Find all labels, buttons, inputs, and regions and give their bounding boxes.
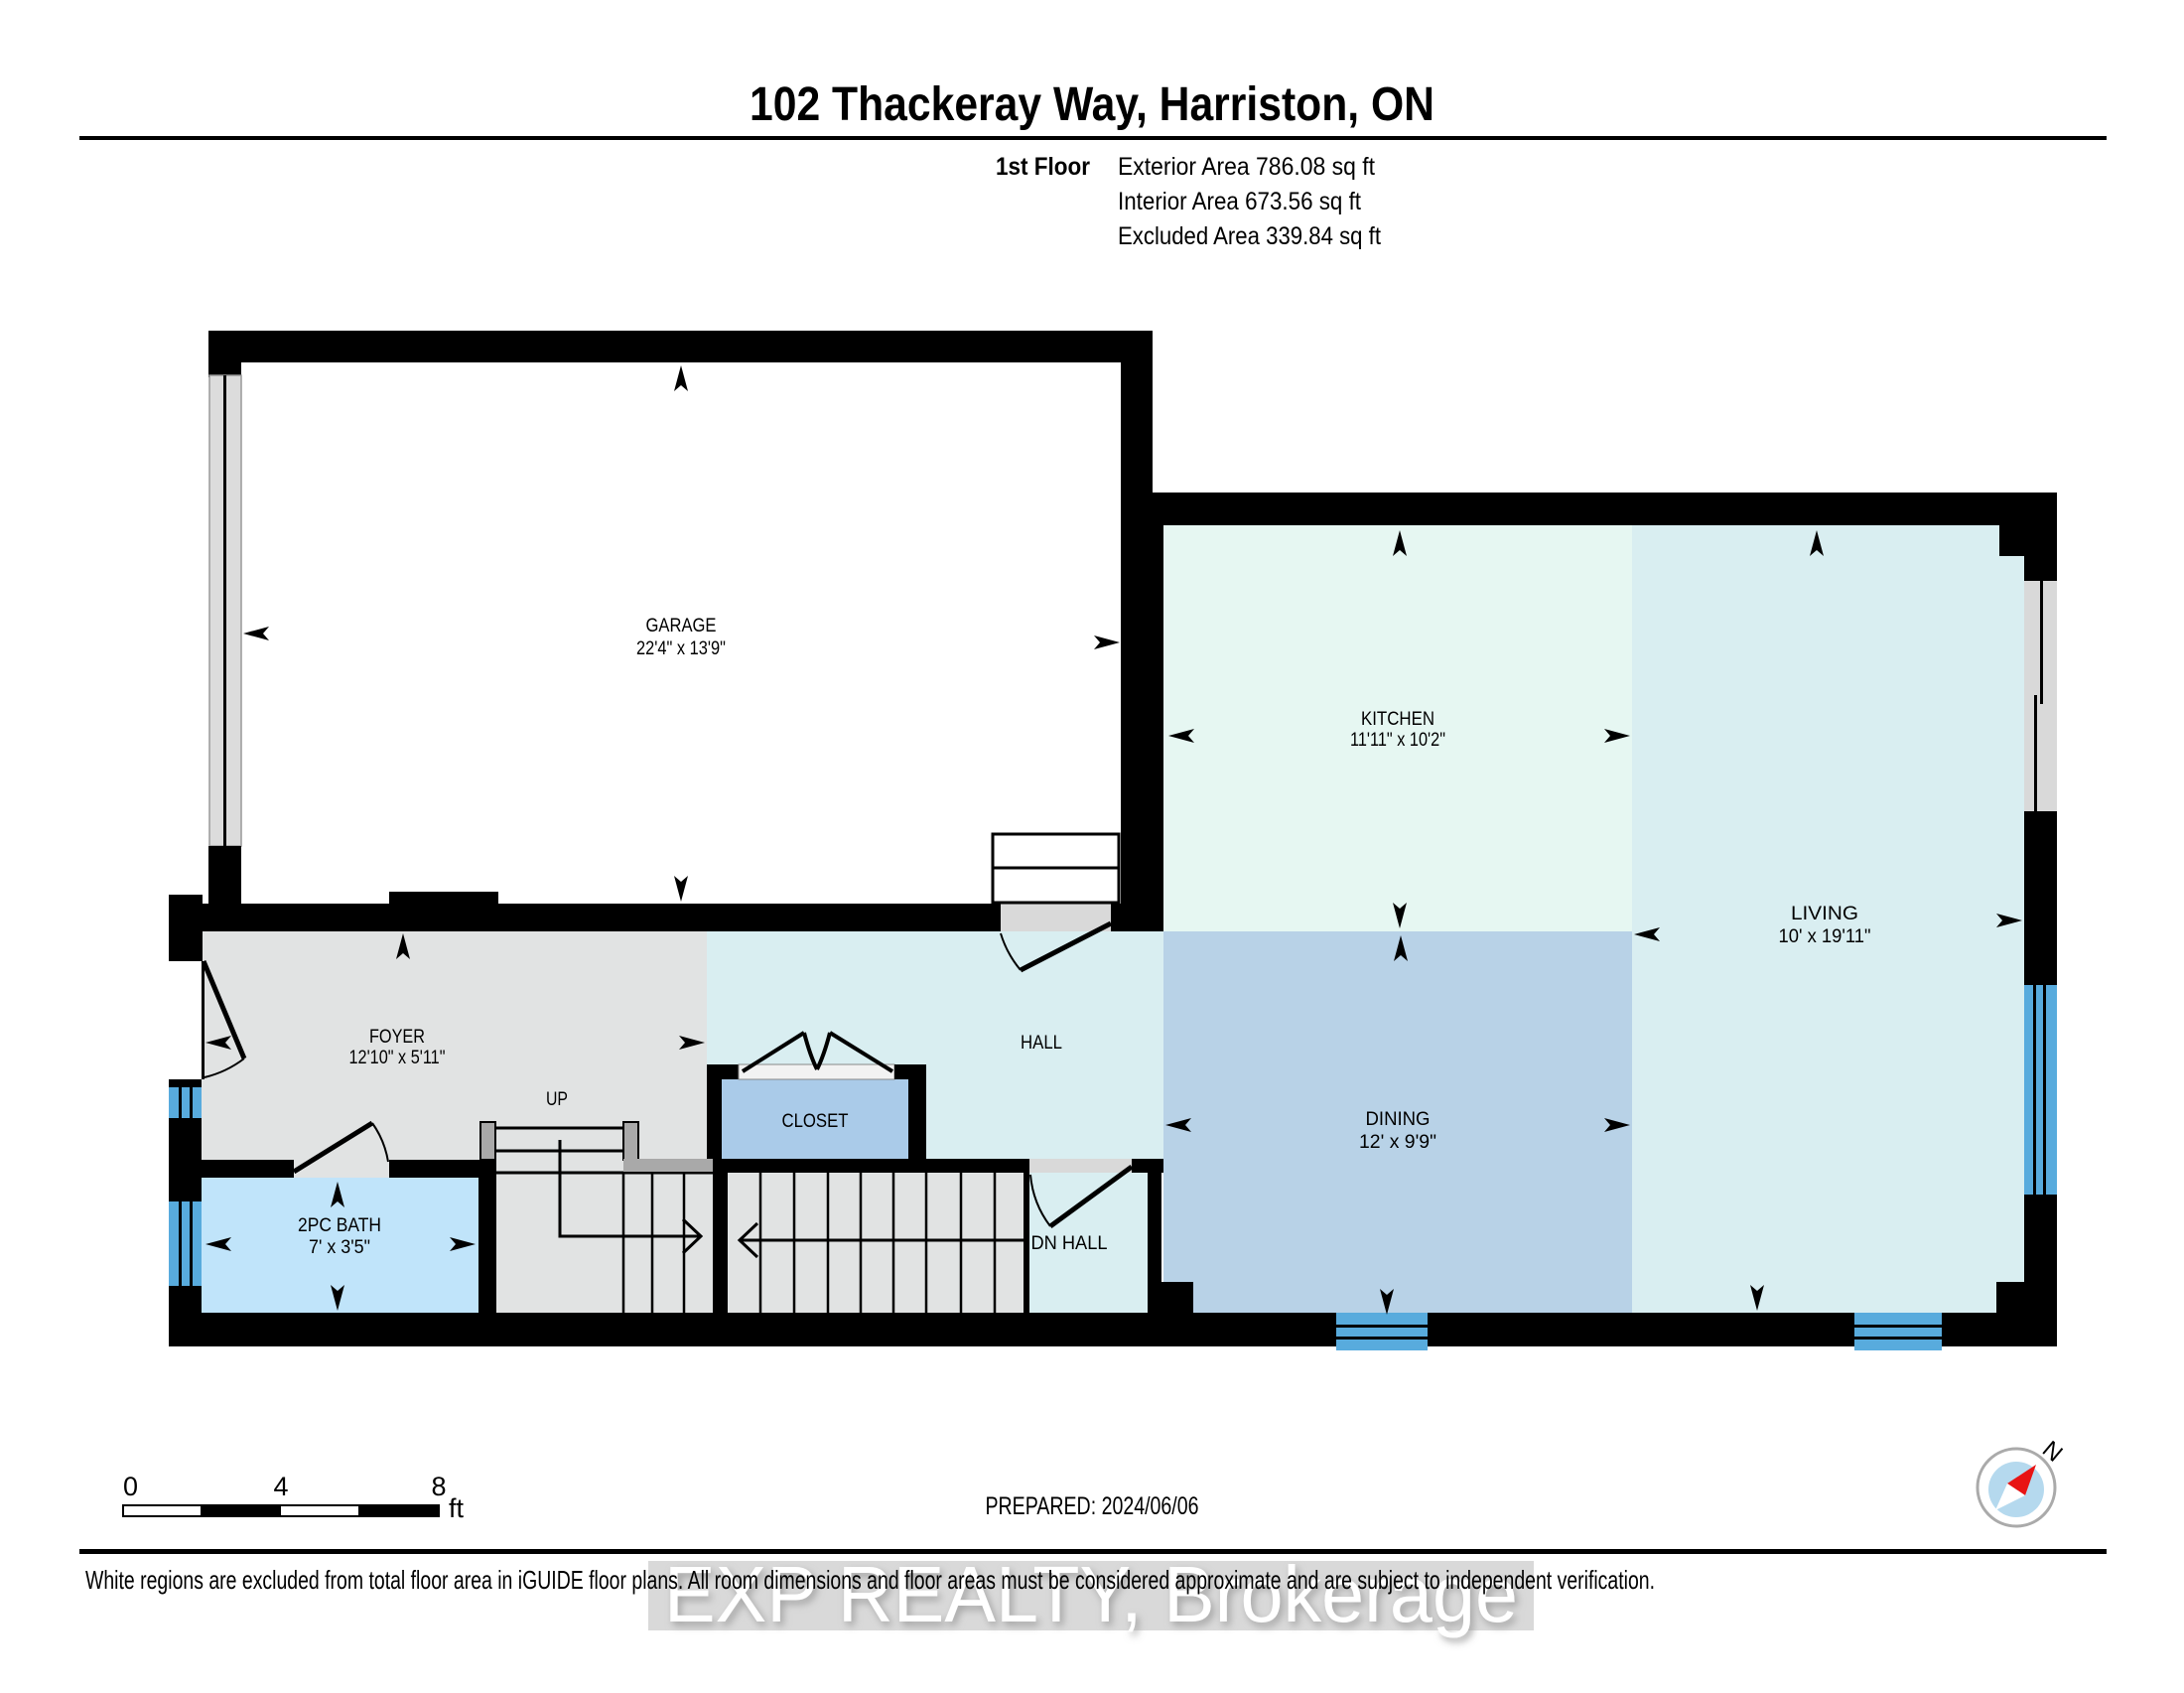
svg-text:22'4" x 13'9": 22'4" x 13'9"	[636, 638, 726, 659]
svg-text:FOYER: FOYER	[369, 1027, 425, 1048]
svg-text:12' x 9'9": 12' x 9'9"	[1359, 1132, 1436, 1153]
svg-text:LIVING: LIVING	[1791, 904, 1858, 924]
svg-text:White regions are excluded fro: White regions are excluded from total fl…	[85, 1565, 1655, 1595]
svg-text:ft: ft	[449, 1493, 465, 1523]
svg-text:UP: UP	[546, 1089, 568, 1110]
svg-text:Interior Area 673.56 sq ft: Interior Area 673.56 sq ft	[1118, 188, 1361, 215]
svg-text:Excluded Area 339.84 sq ft: Excluded Area 339.84 sq ft	[1118, 222, 1381, 250]
svg-text:GARAGE: GARAGE	[646, 616, 717, 636]
svg-text:PREPARED: 2024/06/06: PREPARED: 2024/06/06	[986, 1492, 1199, 1520]
svg-text:0: 0	[123, 1472, 138, 1501]
svg-text:10' x 19'11": 10' x 19'11"	[1779, 926, 1871, 947]
svg-text:11'11" x 10'2": 11'11" x 10'2"	[1350, 730, 1445, 751]
svg-text:4: 4	[273, 1472, 288, 1501]
svg-text:HALL: HALL	[1021, 1033, 1062, 1054]
svg-text:7' x 3'5": 7' x 3'5"	[309, 1237, 370, 1258]
svg-text:102 Thackeray Way, Harriston,: 102 Thackeray Way, Harriston, ON	[750, 78, 1434, 131]
svg-text:8: 8	[431, 1472, 446, 1501]
svg-text:12'10" x 5'11": 12'10" x 5'11"	[349, 1048, 446, 1068]
svg-text:DINING: DINING	[1366, 1109, 1431, 1130]
svg-text:Exterior Area 786.08 sq ft: Exterior Area 786.08 sq ft	[1118, 153, 1375, 181]
svg-text:1st Floor: 1st Floor	[996, 153, 1090, 181]
svg-text:DN HALL: DN HALL	[1031, 1233, 1108, 1254]
svg-text:2PC BATH: 2PC BATH	[298, 1215, 381, 1236]
svg-text:KITCHEN: KITCHEN	[1361, 709, 1434, 730]
svg-text:CLOSET: CLOSET	[782, 1111, 849, 1132]
